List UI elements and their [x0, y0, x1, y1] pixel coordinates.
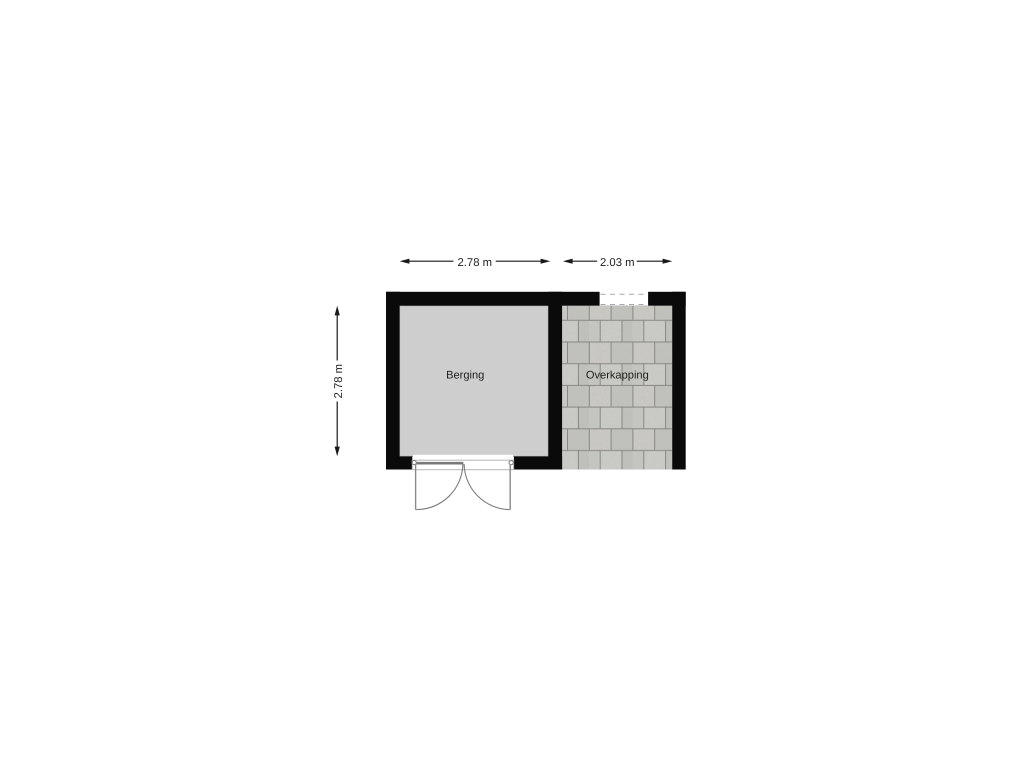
svg-text:2.78 m: 2.78 m — [458, 257, 493, 269]
svg-text:2.78 m: 2.78 m — [333, 364, 345, 399]
svg-text:Overkapping: Overkapping — [586, 370, 649, 382]
svg-text:2.03 m: 2.03 m — [600, 257, 635, 269]
svg-text:Berging: Berging — [446, 370, 484, 382]
